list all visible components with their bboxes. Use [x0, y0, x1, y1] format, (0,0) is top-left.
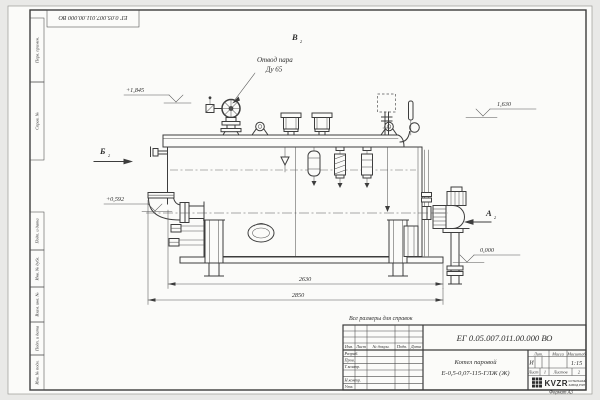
view-b-label: Б — [99, 146, 106, 156]
kvzr-logo-sub2: ЗАВОД РЭП — [569, 383, 586, 387]
elevation-1630-value: 1,630 — [497, 101, 512, 108]
sheets-label: Листов — [552, 370, 567, 375]
margin-col-inv-dubl: Инв. № дубл. — [35, 257, 40, 282]
col-podp: Подп. — [396, 344, 408, 349]
sheet-label: Лист — [527, 370, 538, 375]
elevation-1845-value: +1,845 — [126, 87, 144, 94]
callout-line2: Ду 65 — [265, 66, 283, 74]
dim-inner-value: 2630 — [299, 276, 312, 283]
kvzr-logo: KVZR КОТЕЛЬНЫЙ ЗАВОД РЭП — [532, 378, 587, 389]
row-utv: Утв. — [345, 384, 354, 389]
manhole — [248, 223, 274, 242]
reference-note: Все размеры для справок — [349, 315, 413, 322]
margin-col-vzam-inv: Взам. инв. № — [35, 292, 40, 316]
kvzr-logo-text: KVZR — [545, 379, 568, 388]
product-name-line2: Е-0,5-0,07-115-ГЛЖ (Ж) — [440, 370, 509, 377]
margin-col-podp-data-1: Подп. и дата — [35, 218, 40, 245]
scale-label: Масштаб — [566, 351, 586, 356]
lit-value: И — [528, 360, 534, 367]
col-list: Лист — [355, 344, 366, 349]
col-izm: Изм. — [344, 344, 354, 349]
margin-col-perv-primen: Перв. примен. — [35, 37, 40, 64]
margin-col-podp-data-2: Подп. и дата — [35, 325, 40, 352]
corner-doc-number: ЕГ 0.05.007.011.00.000 ВО — [58, 14, 128, 21]
view-v-label: В — [291, 32, 298, 42]
elevation-0000-value: 0,000 — [480, 247, 495, 254]
row-prov: Пров. — [344, 358, 355, 363]
scale-value: 1:15 — [571, 360, 582, 367]
callout-line1: Отвод пара — [257, 56, 293, 64]
col-doc: № докум. — [371, 344, 389, 349]
sheet-value: 1 — [544, 370, 546, 375]
dim-outer-value: 2850 — [292, 292, 305, 299]
product-name-line1: Котел паровой — [453, 359, 497, 366]
elevation-0592-value: +0,592 — [106, 196, 124, 203]
format-label: Формат А3 — [549, 390, 573, 395]
row-nkontr: Н.контр. — [344, 378, 362, 383]
title-doc-number: ЕГ 0.05.007.011.00.000 ВО — [456, 333, 553, 343]
margin-col-sprav: Справ. № — [35, 112, 40, 130]
row-razrab: Разраб. — [344, 351, 359, 356]
view-a-label: А — [485, 208, 492, 218]
col-data: Дата — [410, 344, 421, 349]
mass-label: Масса — [551, 351, 564, 356]
row-tkontr: Т.контр. — [345, 364, 361, 369]
kvzr-logo-mark — [532, 378, 542, 388]
pump-support-post — [404, 226, 418, 257]
lit-label: Лит. — [533, 351, 543, 356]
blueprint-canvas: Перв. примен. Справ. № Подп. и дата Инв.… — [0, 0, 600, 400]
margin-col-inv-podl: Инв. № подл. — [35, 360, 40, 385]
